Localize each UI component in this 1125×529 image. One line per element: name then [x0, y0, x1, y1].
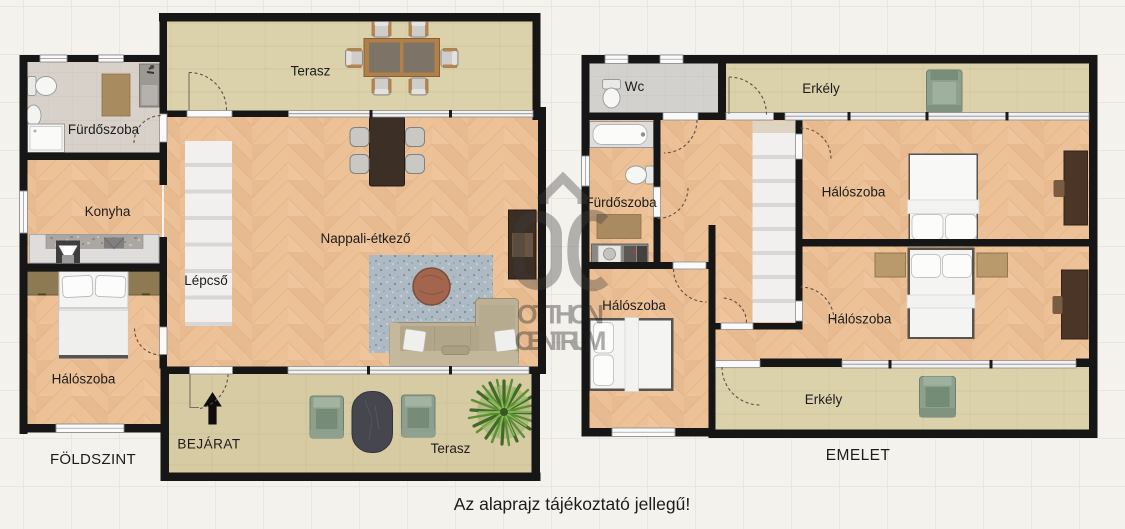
svg-text:Fürdőszoba: Fürdőszoba — [68, 122, 140, 137]
svg-text:Fürdőszoba: Fürdőszoba — [585, 195, 657, 210]
svg-text:Az alaprajz tájékoztató jelleg: Az alaprajz tájékoztató jellegű! — [454, 494, 690, 514]
svg-text:Hálószoba: Hálószoba — [828, 312, 892, 327]
svg-text:Konyha: Konyha — [85, 204, 131, 219]
svg-text:OTTHON: OTTHON — [517, 300, 604, 330]
svg-text:Erkély: Erkély — [802, 81, 840, 96]
svg-text:Terasz: Terasz — [291, 64, 331, 79]
svg-text:BEJÁRAT: BEJÁRAT — [177, 437, 240, 452]
svg-text:FÖLDSZINT: FÖLDSZINT — [50, 450, 136, 468]
svg-text:Erkély: Erkély — [805, 392, 843, 407]
svg-text:EMELET: EMELET — [826, 447, 891, 464]
svg-text:Hálószoba: Hálószoba — [602, 298, 666, 313]
svg-text:CENTRUM: CENTRUM — [515, 326, 607, 356]
svg-text:Wc: Wc — [625, 79, 645, 94]
svg-text:Nappali-étkező: Nappali-étkező — [320, 231, 410, 246]
svg-text:Terasz: Terasz — [431, 441, 471, 456]
svg-text:Hálószoba: Hálószoba — [52, 372, 116, 387]
svg-text:Hálószoba: Hálószoba — [822, 185, 886, 200]
svg-text:Lépcső: Lépcső — [184, 273, 228, 288]
